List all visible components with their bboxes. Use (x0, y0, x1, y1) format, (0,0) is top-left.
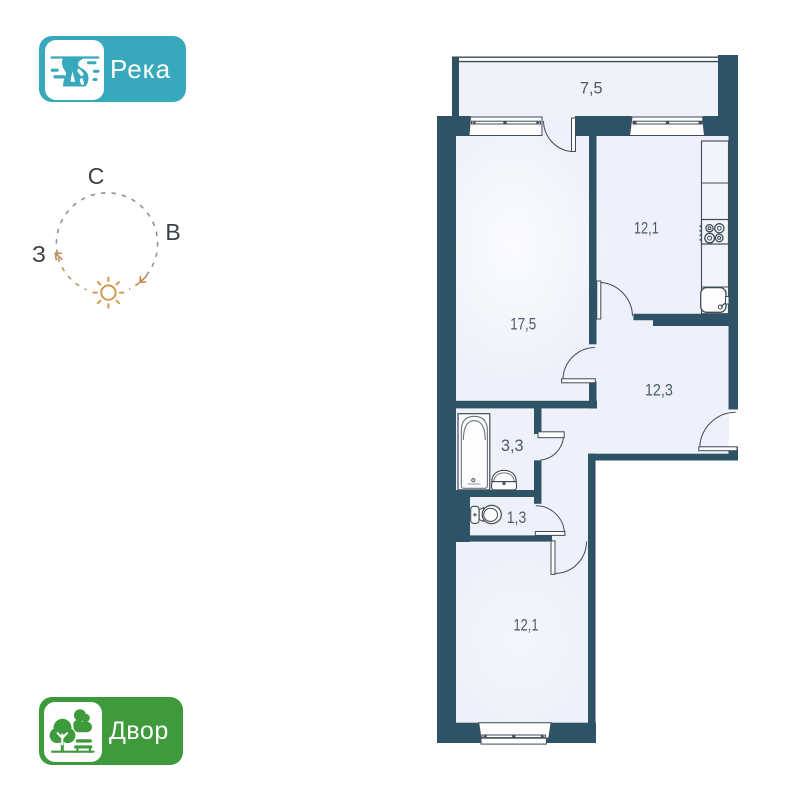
svg-text:12,1: 12,1 (634, 220, 659, 238)
svg-text:17,5: 17,5 (510, 316, 536, 334)
svg-text:3,3: 3,3 (501, 437, 524, 455)
svg-text:7,5: 7,5 (580, 80, 603, 98)
svg-text:12,3: 12,3 (645, 381, 673, 399)
svg-text:12,1: 12,1 (514, 617, 539, 635)
svg-text:1,3: 1,3 (507, 509, 527, 527)
